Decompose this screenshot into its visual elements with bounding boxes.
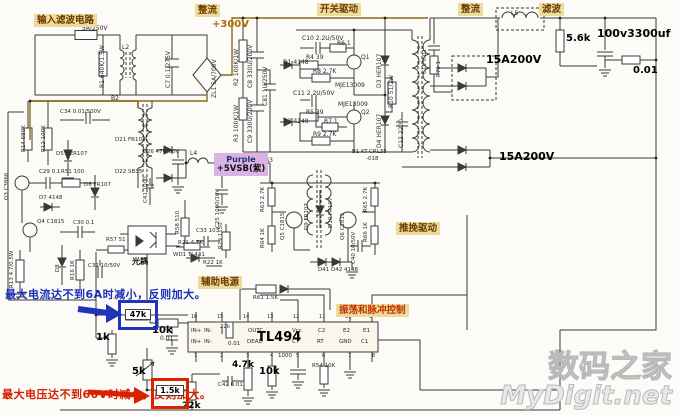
- blue-arrow: [78, 309, 108, 313]
- current-adjust-resistor-value: 47k: [125, 309, 151, 320]
- current-adjust-note: 最大电流达不到6A时减小，反则加大。: [5, 286, 206, 302]
- section-label-input-filter: 输入滤波电路: [34, 14, 97, 27]
- watermark-site-url: MyDigit.net: [500, 383, 672, 409]
- voltage-adjust-resistor-value: 1.5k: [156, 385, 184, 396]
- rail-label-300v: +300V: [212, 19, 249, 30]
- standby-rail-color-name: Purple: [216, 155, 266, 164]
- section-label-filter-right: 滤波: [539, 3, 564, 16]
- section-label-rectify-right: 整流: [458, 3, 483, 16]
- standby-rail-tag: Purple +5VSB(紫): [214, 153, 268, 176]
- section-label-osc-pulse-control: 振荡和脉冲控制: [336, 304, 409, 317]
- watermark: 数码之家 MyDigit.net: [500, 352, 672, 409]
- schematic-canvas: 5A/250VR1 640K/1.5WL2C7 0.1/275VZL1 5A/7…: [0, 0, 680, 415]
- optocoupler-label: 光耦: [132, 256, 148, 267]
- section-label-push-pull: 推挽驱动: [396, 222, 440, 235]
- ic-name-tl494: TL494: [257, 330, 301, 345]
- standby-rail-voltage: +5VSB(紫): [216, 164, 266, 174]
- watermark-site-name: 数码之家: [500, 352, 672, 383]
- section-label-rectify-top: 整流: [195, 4, 220, 17]
- section-label-switch-drive: 开关驱动: [317, 3, 361, 16]
